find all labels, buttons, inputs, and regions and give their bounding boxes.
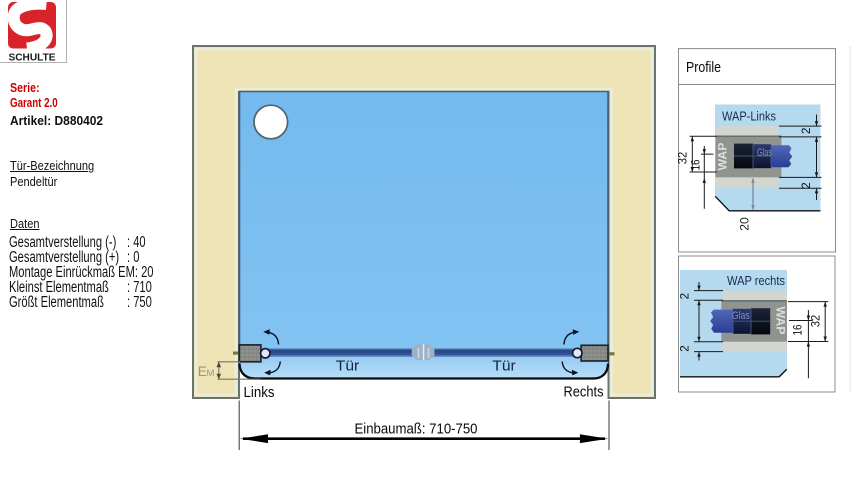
svg-text:WAP rechts: WAP rechts — [727, 273, 785, 288]
svg-text:Glas: Glas — [732, 310, 750, 322]
svg-text:20: 20 — [740, 217, 752, 231]
svg-text:Profile: Profile — [686, 59, 721, 76]
svg-text:32: 32 — [675, 151, 689, 164]
svg-text:2: 2 — [801, 128, 813, 134]
svg-text:2: 2 — [680, 293, 692, 299]
svg-text:Glas: Glas — [757, 147, 772, 159]
svg-text:Rechts: Rechts — [564, 384, 604, 401]
svg-text:2: 2 — [801, 182, 813, 188]
svg-text:Tür: Tür — [492, 357, 516, 374]
svg-text:WAP: WAP — [716, 143, 730, 171]
svg-text:M: M — [207, 368, 215, 379]
svg-text:2: 2 — [680, 345, 692, 351]
svg-text:WAP-Links: WAP-Links — [722, 109, 776, 124]
svg-text:Tür: Tür — [336, 357, 360, 374]
svg-text:Einbaumaß: 710-750: Einbaumaß: 710-750 — [355, 421, 478, 438]
svg-text:16: 16 — [790, 324, 804, 335]
svg-text:Links: Links — [244, 384, 275, 401]
svg-text:16: 16 — [689, 159, 703, 170]
svg-text:WAP: WAP — [774, 307, 788, 335]
svg-text:E: E — [198, 364, 207, 379]
